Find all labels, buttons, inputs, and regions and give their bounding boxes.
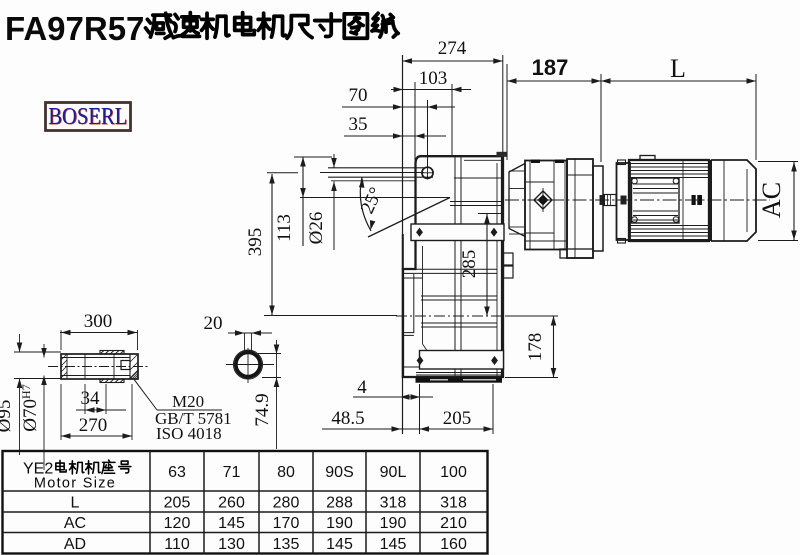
svg-text:Motor Size: Motor Size bbox=[34, 476, 116, 492]
svg-text:FA97R57: FA97R57 bbox=[5, 10, 144, 47]
svg-text:205: 205 bbox=[443, 408, 472, 429]
svg-text:103: 103 bbox=[419, 68, 448, 89]
svg-text:145: 145 bbox=[380, 536, 407, 553]
svg-text:260: 260 bbox=[218, 495, 245, 512]
svg-text:210: 210 bbox=[440, 515, 467, 532]
svg-text:300: 300 bbox=[84, 311, 113, 332]
svg-text:71: 71 bbox=[223, 464, 241, 481]
svg-text:145: 145 bbox=[218, 515, 245, 532]
svg-text:L: L bbox=[71, 495, 80, 512]
svg-text:4: 4 bbox=[357, 377, 367, 398]
svg-text:74.9: 74.9 bbox=[252, 393, 273, 426]
svg-text:110: 110 bbox=[164, 536, 190, 553]
svg-text:178: 178 bbox=[525, 333, 546, 362]
svg-text:288: 288 bbox=[326, 495, 353, 512]
svg-text:270: 270 bbox=[79, 415, 108, 436]
svg-text:AC: AC bbox=[64, 515, 86, 532]
svg-text:135: 135 bbox=[273, 536, 300, 553]
svg-text:Ø95: Ø95 bbox=[0, 400, 15, 433]
svg-text:AC: AC bbox=[757, 182, 786, 218]
svg-text:205: 205 bbox=[164, 495, 191, 512]
svg-text:20: 20 bbox=[204, 313, 223, 334]
svg-text:274: 274 bbox=[438, 38, 467, 59]
svg-text:160: 160 bbox=[440, 536, 467, 553]
svg-text:190: 190 bbox=[326, 515, 353, 532]
svg-text:63: 63 bbox=[168, 464, 186, 481]
svg-text:318: 318 bbox=[380, 495, 407, 512]
svg-text:120: 120 bbox=[164, 515, 191, 532]
svg-text:BOSERL: BOSERL bbox=[48, 104, 127, 130]
svg-text:113: 113 bbox=[274, 214, 295, 242]
svg-text:70: 70 bbox=[349, 85, 368, 106]
svg-text:L: L bbox=[670, 54, 686, 83]
svg-text:190: 190 bbox=[380, 515, 407, 532]
svg-text:130: 130 bbox=[218, 536, 245, 553]
svg-text:34: 34 bbox=[81, 388, 101, 409]
svg-text:Ø26: Ø26 bbox=[306, 212, 327, 245]
svg-text:90L: 90L bbox=[380, 464, 407, 481]
svg-text:285: 285 bbox=[459, 250, 480, 279]
svg-text:80: 80 bbox=[277, 464, 295, 481]
svg-text:395: 395 bbox=[245, 228, 266, 257]
svg-text:35: 35 bbox=[349, 114, 368, 135]
svg-text:280: 280 bbox=[273, 495, 300, 512]
svg-text:90S: 90S bbox=[325, 464, 353, 481]
svg-text:48.5: 48.5 bbox=[331, 408, 364, 429]
svg-text:145: 145 bbox=[326, 536, 353, 553]
svg-text:AD: AD bbox=[64, 536, 86, 553]
svg-text:318: 318 bbox=[440, 495, 467, 512]
svg-text:ISO 4018: ISO 4018 bbox=[156, 424, 222, 443]
svg-text:187: 187 bbox=[532, 55, 569, 80]
svg-text:100: 100 bbox=[440, 464, 467, 481]
svg-text:170: 170 bbox=[273, 515, 300, 532]
